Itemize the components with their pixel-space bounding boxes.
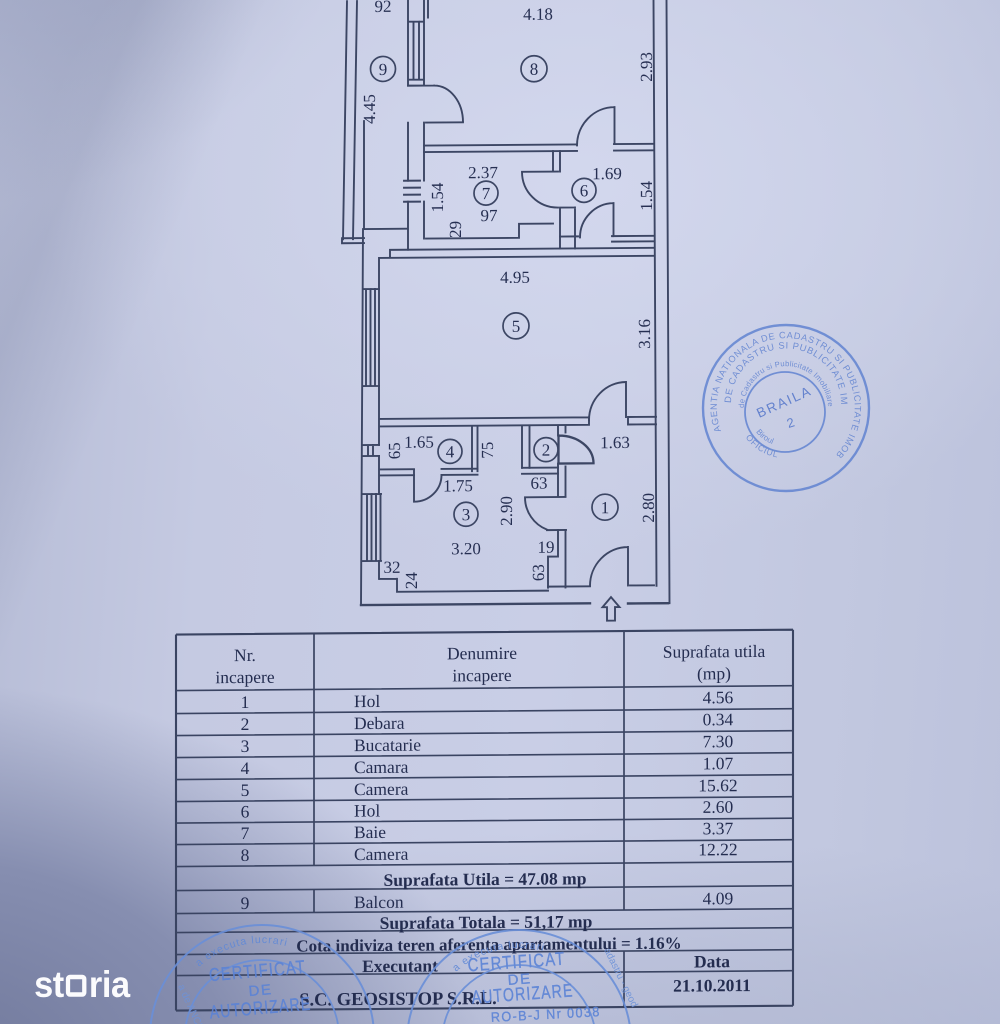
- svg-text:2.80: 2.80: [639, 493, 658, 523]
- svg-text:4.18: 4.18: [523, 5, 553, 24]
- svg-text:3: 3: [241, 736, 250, 756]
- svg-text:Balcon: Balcon: [354, 892, 404, 912]
- svg-text:29: 29: [446, 221, 465, 238]
- svg-text:2.37: 2.37: [468, 163, 498, 182]
- svg-text:1.65: 1.65: [404, 433, 434, 452]
- svg-text:9: 9: [379, 60, 387, 79]
- svg-text:Debara: Debara: [354, 713, 405, 733]
- svg-text:Executant: Executant: [362, 955, 438, 976]
- svg-text:8: 8: [241, 845, 250, 865]
- svg-text:(mp): (mp): [697, 663, 731, 683]
- svg-text:15.62: 15.62: [698, 775, 737, 795]
- svg-text:12.22: 12.22: [698, 839, 737, 859]
- svg-text:75: 75: [478, 442, 497, 459]
- svg-text:6: 6: [241, 801, 250, 821]
- svg-text:Hol: Hol: [354, 691, 380, 711]
- svg-text:incapere: incapere: [215, 667, 274, 687]
- svg-text:24: 24: [402, 572, 421, 590]
- svg-text:Suprafata utila: Suprafata utila: [663, 641, 766, 662]
- svg-text:4: 4: [446, 442, 455, 461]
- svg-text:Baie: Baie: [354, 822, 386, 842]
- svg-text:0.34: 0.34: [703, 709, 734, 729]
- svg-text:2: 2: [785, 414, 797, 431]
- svg-text:AUTORIZARE: AUTORIZARE: [209, 993, 312, 1023]
- svg-text:7: 7: [482, 184, 491, 203]
- svg-text:97: 97: [481, 206, 498, 225]
- svg-text:1: 1: [601, 498, 609, 517]
- svg-text:3.37: 3.37: [703, 818, 734, 838]
- svg-text:2.90: 2.90: [497, 496, 516, 526]
- svg-text:4: 4: [241, 758, 250, 778]
- svg-text:4.56: 4.56: [703, 687, 734, 707]
- svg-text:1.63: 1.63: [600, 433, 630, 452]
- svg-text:Suprafata Totala = 51,17 mp: Suprafata Totala = 51,17 mp: [380, 911, 593, 933]
- svg-text:Suprafata Utila = 47.08 mp: Suprafata Utila = 47.08 mp: [384, 868, 587, 890]
- svg-text:Data: Data: [694, 951, 730, 971]
- svg-text:Denumire: Denumire: [447, 643, 517, 664]
- svg-text:ria: ria: [89, 964, 131, 1005]
- svg-text:1: 1: [241, 692, 250, 712]
- svg-text:65: 65: [385, 442, 404, 459]
- svg-text:4.45: 4.45: [360, 94, 379, 124]
- svg-text:3.16: 3.16: [635, 319, 654, 349]
- svg-text:7: 7: [241, 823, 250, 843]
- svg-text:BRAILA: BRAILA: [754, 383, 814, 421]
- svg-text:32: 32: [384, 558, 401, 577]
- svg-text:3.20: 3.20: [451, 539, 481, 558]
- svg-text:1.54: 1.54: [428, 182, 447, 212]
- svg-text:92: 92: [375, 0, 392, 16]
- svg-text:Hol: Hol: [354, 800, 380, 820]
- svg-text:6: 6: [580, 181, 588, 200]
- svg-text:7.30: 7.30: [703, 731, 734, 751]
- svg-text:5: 5: [512, 317, 520, 336]
- svg-text:63: 63: [529, 564, 548, 581]
- svg-text:1.69: 1.69: [592, 164, 622, 183]
- svg-text:8: 8: [530, 60, 538, 79]
- svg-text:4.95: 4.95: [500, 268, 530, 287]
- svg-text:Camera: Camera: [354, 779, 409, 799]
- svg-text:63: 63: [531, 474, 548, 493]
- svg-text:5: 5: [241, 780, 250, 800]
- svg-text:2.93: 2.93: [637, 52, 656, 82]
- svg-text:21.10.2011: 21.10.2011: [673, 975, 751, 996]
- svg-text:incapere: incapere: [452, 665, 511, 685]
- svg-text:2: 2: [241, 714, 250, 734]
- svg-text:1.07: 1.07: [703, 753, 734, 773]
- svg-text:9: 9: [241, 893, 250, 913]
- svg-text:2.60: 2.60: [703, 797, 734, 817]
- svg-text:4.09: 4.09: [703, 888, 734, 908]
- svg-text:1.75: 1.75: [443, 476, 473, 495]
- svg-text:3: 3: [462, 505, 470, 524]
- svg-text:2: 2: [542, 441, 550, 460]
- svg-text:Camera: Camera: [354, 844, 409, 864]
- svg-text:Camara: Camara: [354, 757, 409, 777]
- svg-text:CERTIFICAT: CERTIFICAT: [208, 956, 306, 985]
- svg-text:19: 19: [538, 538, 555, 557]
- svg-text:Nr.: Nr.: [234, 645, 256, 665]
- svg-text:adastru - geod: adastru - geod: [601, 946, 639, 1009]
- svg-text:st: st: [34, 964, 64, 1005]
- svg-text:1.54: 1.54: [637, 180, 656, 210]
- svg-text:Bucatarie: Bucatarie: [354, 735, 421, 756]
- svg-text:AUTORIZARE: AUTORIZARE: [471, 979, 574, 1007]
